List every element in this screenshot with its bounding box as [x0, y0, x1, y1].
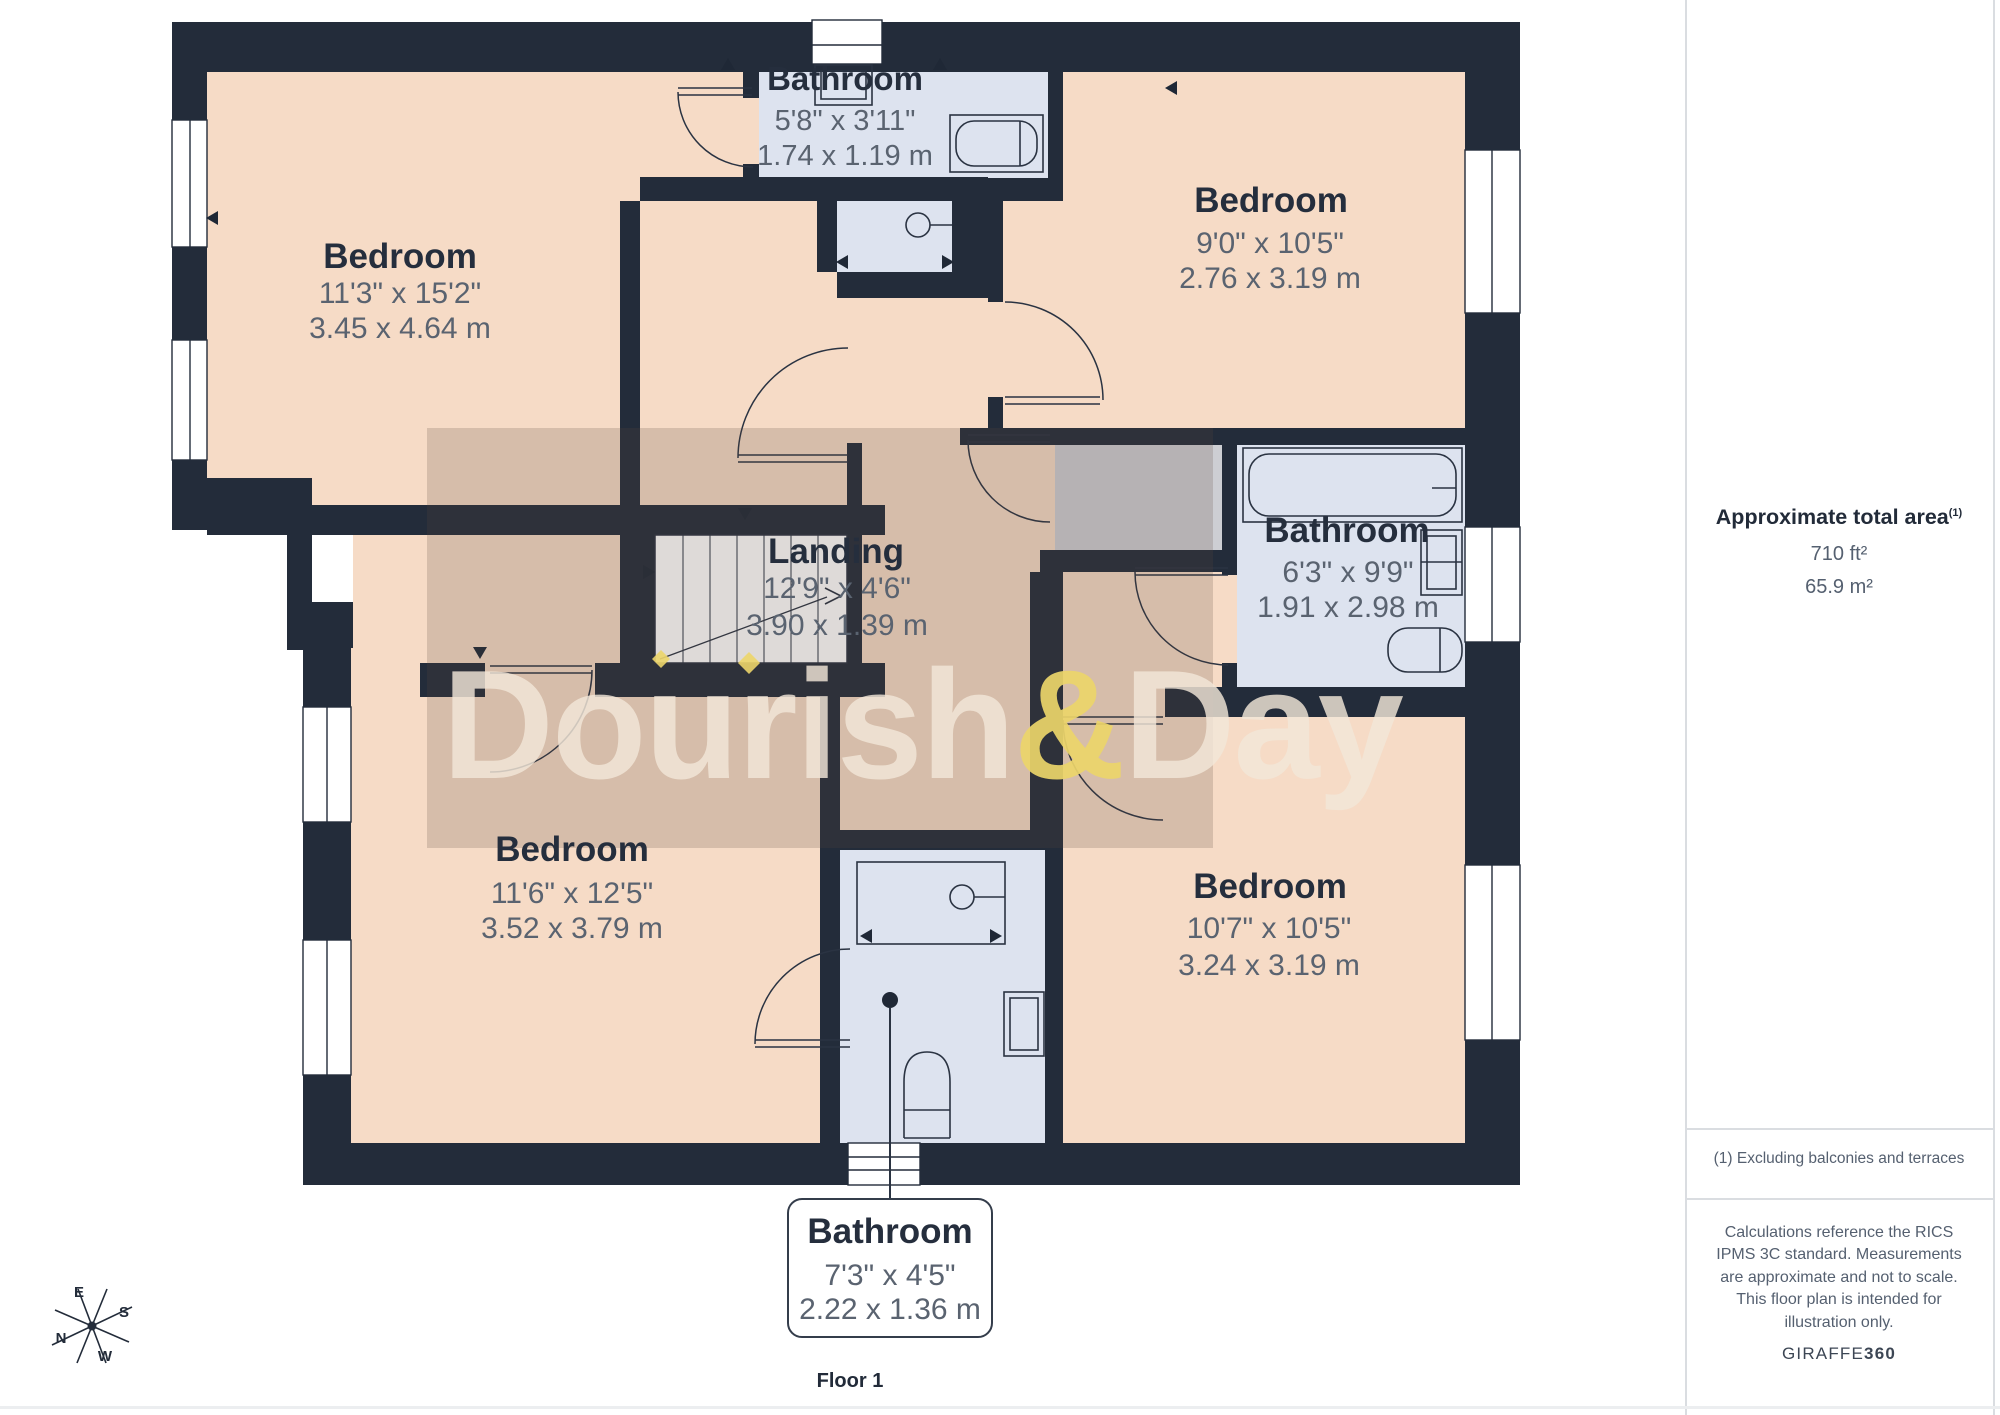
- room-dims-imperial: 5'8" x 3'11": [775, 105, 916, 137]
- room-label-landing: Landing 12'9" x 4'6" 3.90 x 1.39 m: [746, 532, 928, 642]
- room-dims-metric: 3.45 x 4.64 m: [309, 312, 491, 345]
- area-footnote: (1) Excluding balconies and terraces: [1700, 1150, 1978, 1168]
- sidebar-divider-left: [1685, 0, 1687, 1415]
- room-name: Landing: [768, 532, 904, 571]
- room-name: Bathroom: [767, 60, 923, 97]
- room-dims-imperial: 7'3" x 4'5": [824, 1259, 955, 1292]
- room-dims-imperial: 11'3" x 15'2": [319, 277, 481, 310]
- floor-label: Floor 1: [790, 1370, 910, 1393]
- window: [1465, 865, 1520, 1040]
- floorplan-drawing: Dourish&Day Bedroom 11'3" x 15'2" 3.45 x…: [0, 0, 2000, 1415]
- window: [1465, 527, 1520, 642]
- room-dims-metric: 3.90 x 1.39 m: [746, 609, 928, 642]
- compass-rose: E S N W: [52, 1284, 132, 1365]
- room-label-bedroom-tr: Bedroom 9'0" x 10'5" 2.76 x 3.19 m: [1179, 181, 1361, 295]
- room-name: Bathroom: [1264, 511, 1429, 550]
- window: [303, 940, 351, 1075]
- room-label-bedroom-br: Bedroom 10'7" x 10'5" 3.24 x 3.19 m: [1178, 867, 1360, 982]
- total-area-sqm: 65.9 m²: [1698, 576, 1980, 599]
- room-dims-imperial: 10'7" x 10'5": [1187, 912, 1352, 945]
- room-dims-imperial: 6'3" x 9'9": [1282, 556, 1413, 589]
- room-label-bedroom-bl: Bedroom 11'6" x 12'5" 3.52 x 3.79 m: [481, 830, 663, 945]
- room-name: Bedroom: [1194, 181, 1348, 220]
- room-dims-metric: 3.24 x 3.19 m: [1178, 949, 1360, 982]
- room-name: Bedroom: [1193, 867, 1347, 906]
- room-name: Bathroom: [807, 1212, 972, 1251]
- giraffe360-logo: GIRAFFE360: [1698, 1344, 1980, 1364]
- window: [812, 20, 882, 64]
- compass-south-label: S: [119, 1304, 129, 1321]
- watermark-text: Dourish&Day: [442, 638, 1404, 811]
- sidebar-rule: [1685, 1198, 1993, 1200]
- room-dims-imperial: 12'9" x 4'6": [763, 572, 911, 605]
- room-dims-imperial: 11'6" x 12'5": [491, 877, 653, 910]
- compass-east-label: E: [74, 1284, 84, 1301]
- callout-anchor-dot: [882, 992, 898, 1008]
- window: [303, 707, 351, 822]
- room-label-bedroom-tl: Bedroom 11'3" x 15'2" 3.45 x 4.64 m: [309, 237, 491, 345]
- floorplan-page: Dourish&Day Bedroom 11'3" x 15'2" 3.45 x…: [0, 0, 2000, 1415]
- footnote-marker: (1): [1949, 507, 1962, 519]
- sidebar-divider-right: [1993, 0, 1995, 1415]
- window: [172, 340, 207, 460]
- room-label-bathroom-top: Bathroom 5'8" x 3'11" 1.74 x 1.19 m: [757, 60, 933, 172]
- compass-north-label: N: [56, 1330, 67, 1347]
- compass-west-label: W: [98, 1348, 113, 1365]
- room-dims-metric: 2.76 x 3.19 m: [1179, 262, 1361, 295]
- room-dims-metric: 1.74 x 1.19 m: [757, 140, 933, 172]
- room-dims-metric: 1.91 x 2.98 m: [1257, 591, 1439, 624]
- page-bottom-border: [0, 1406, 2000, 1409]
- window: [172, 120, 207, 247]
- room-label-bathroom-mid: Bathroom 6'3" x 9'9" 1.91 x 2.98 m: [1257, 511, 1439, 624]
- room-dims-imperial: 9'0" x 10'5": [1196, 227, 1344, 260]
- sidebar-rule: [1685, 1128, 1993, 1130]
- room-dims-metric: 3.52 x 3.79 m: [481, 912, 663, 945]
- total-area-sqft: 710 ft²: [1698, 543, 1980, 566]
- door-opening: [848, 1143, 920, 1185]
- total-area-heading: Approximate total area(1): [1698, 505, 1980, 530]
- room-dims-metric: 2.22 x 1.36 m: [799, 1293, 981, 1326]
- disclaimer-text: Calculations reference the RICS IPMS 3C …: [1714, 1222, 1964, 1334]
- room-name: Bedroom: [323, 237, 477, 276]
- bathtub-top-bath: [950, 115, 1043, 172]
- giraffe360-logo-number: 360: [1864, 1344, 1896, 1363]
- room-name: Bedroom: [495, 830, 649, 869]
- window: [1465, 150, 1520, 313]
